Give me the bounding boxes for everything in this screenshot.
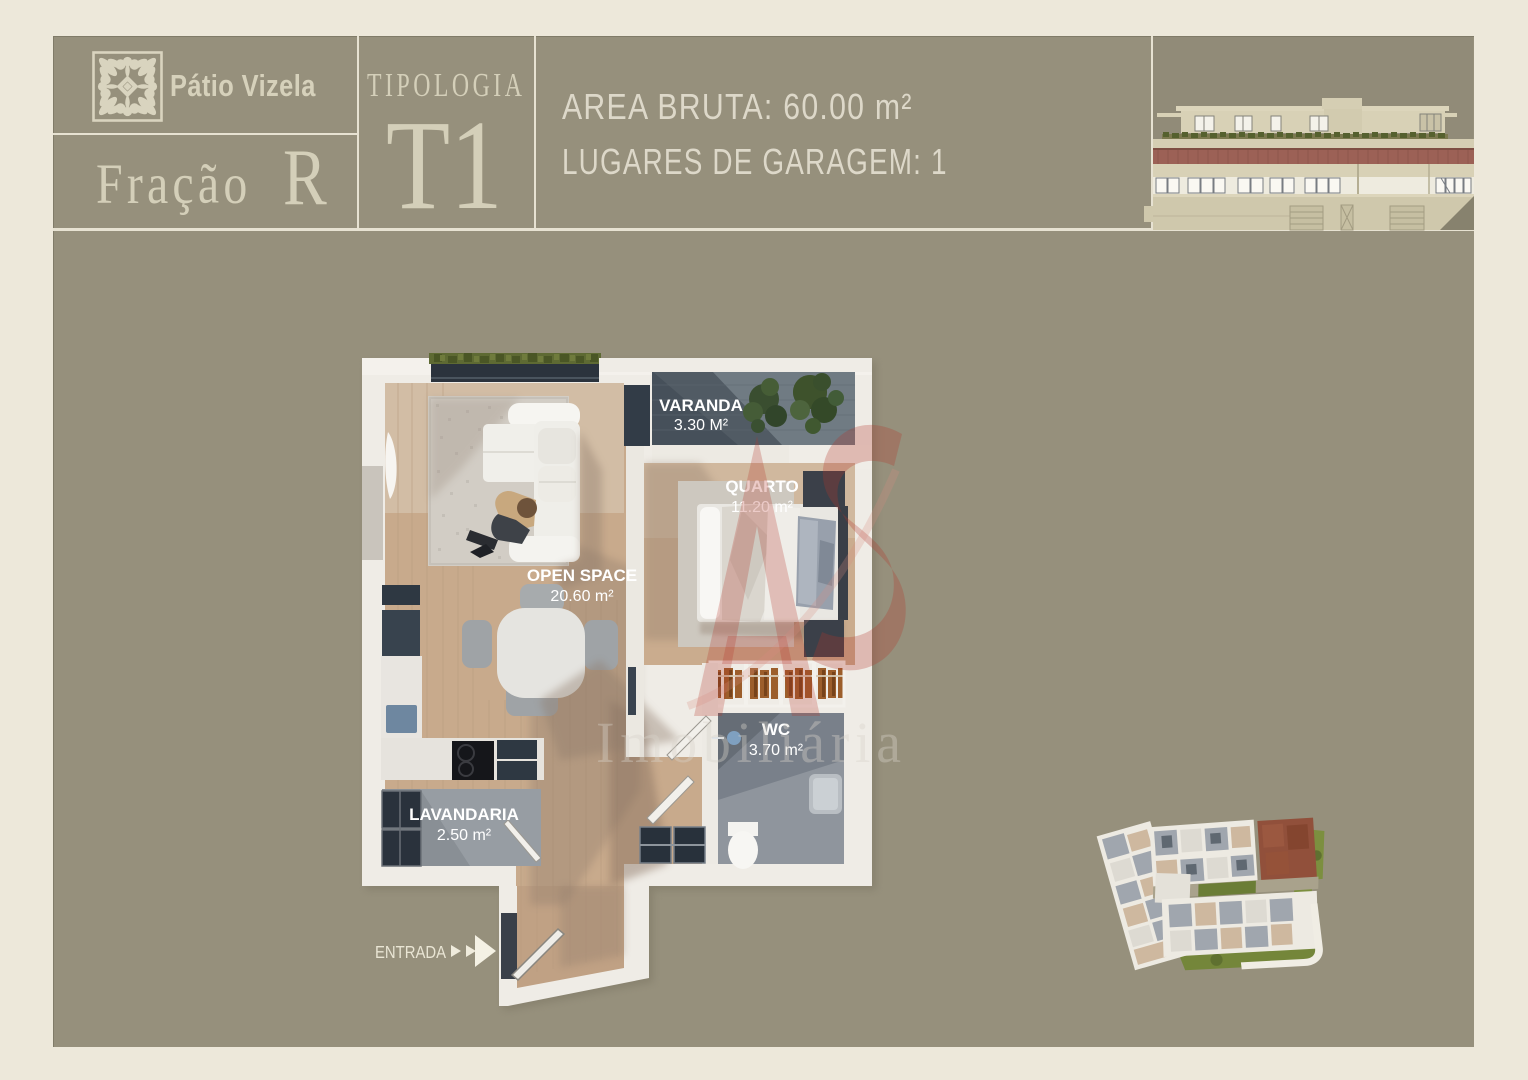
svg-text:Imobiliária: Imobiliária <box>596 711 907 775</box>
svg-text:3.30 M²: 3.30 M² <box>674 417 729 434</box>
svg-text:2.50 m²: 2.50 m² <box>437 827 492 844</box>
svg-text:ENTRADA: ENTRADA <box>375 943 446 962</box>
svg-text:20.60 m²: 20.60 m² <box>550 588 614 605</box>
svg-text:VARANDA: VARANDA <box>659 396 743 415</box>
svg-text:OPEN SPACE: OPEN SPACE <box>527 566 637 585</box>
svg-text:LAVANDARIA: LAVANDARIA <box>409 805 519 824</box>
